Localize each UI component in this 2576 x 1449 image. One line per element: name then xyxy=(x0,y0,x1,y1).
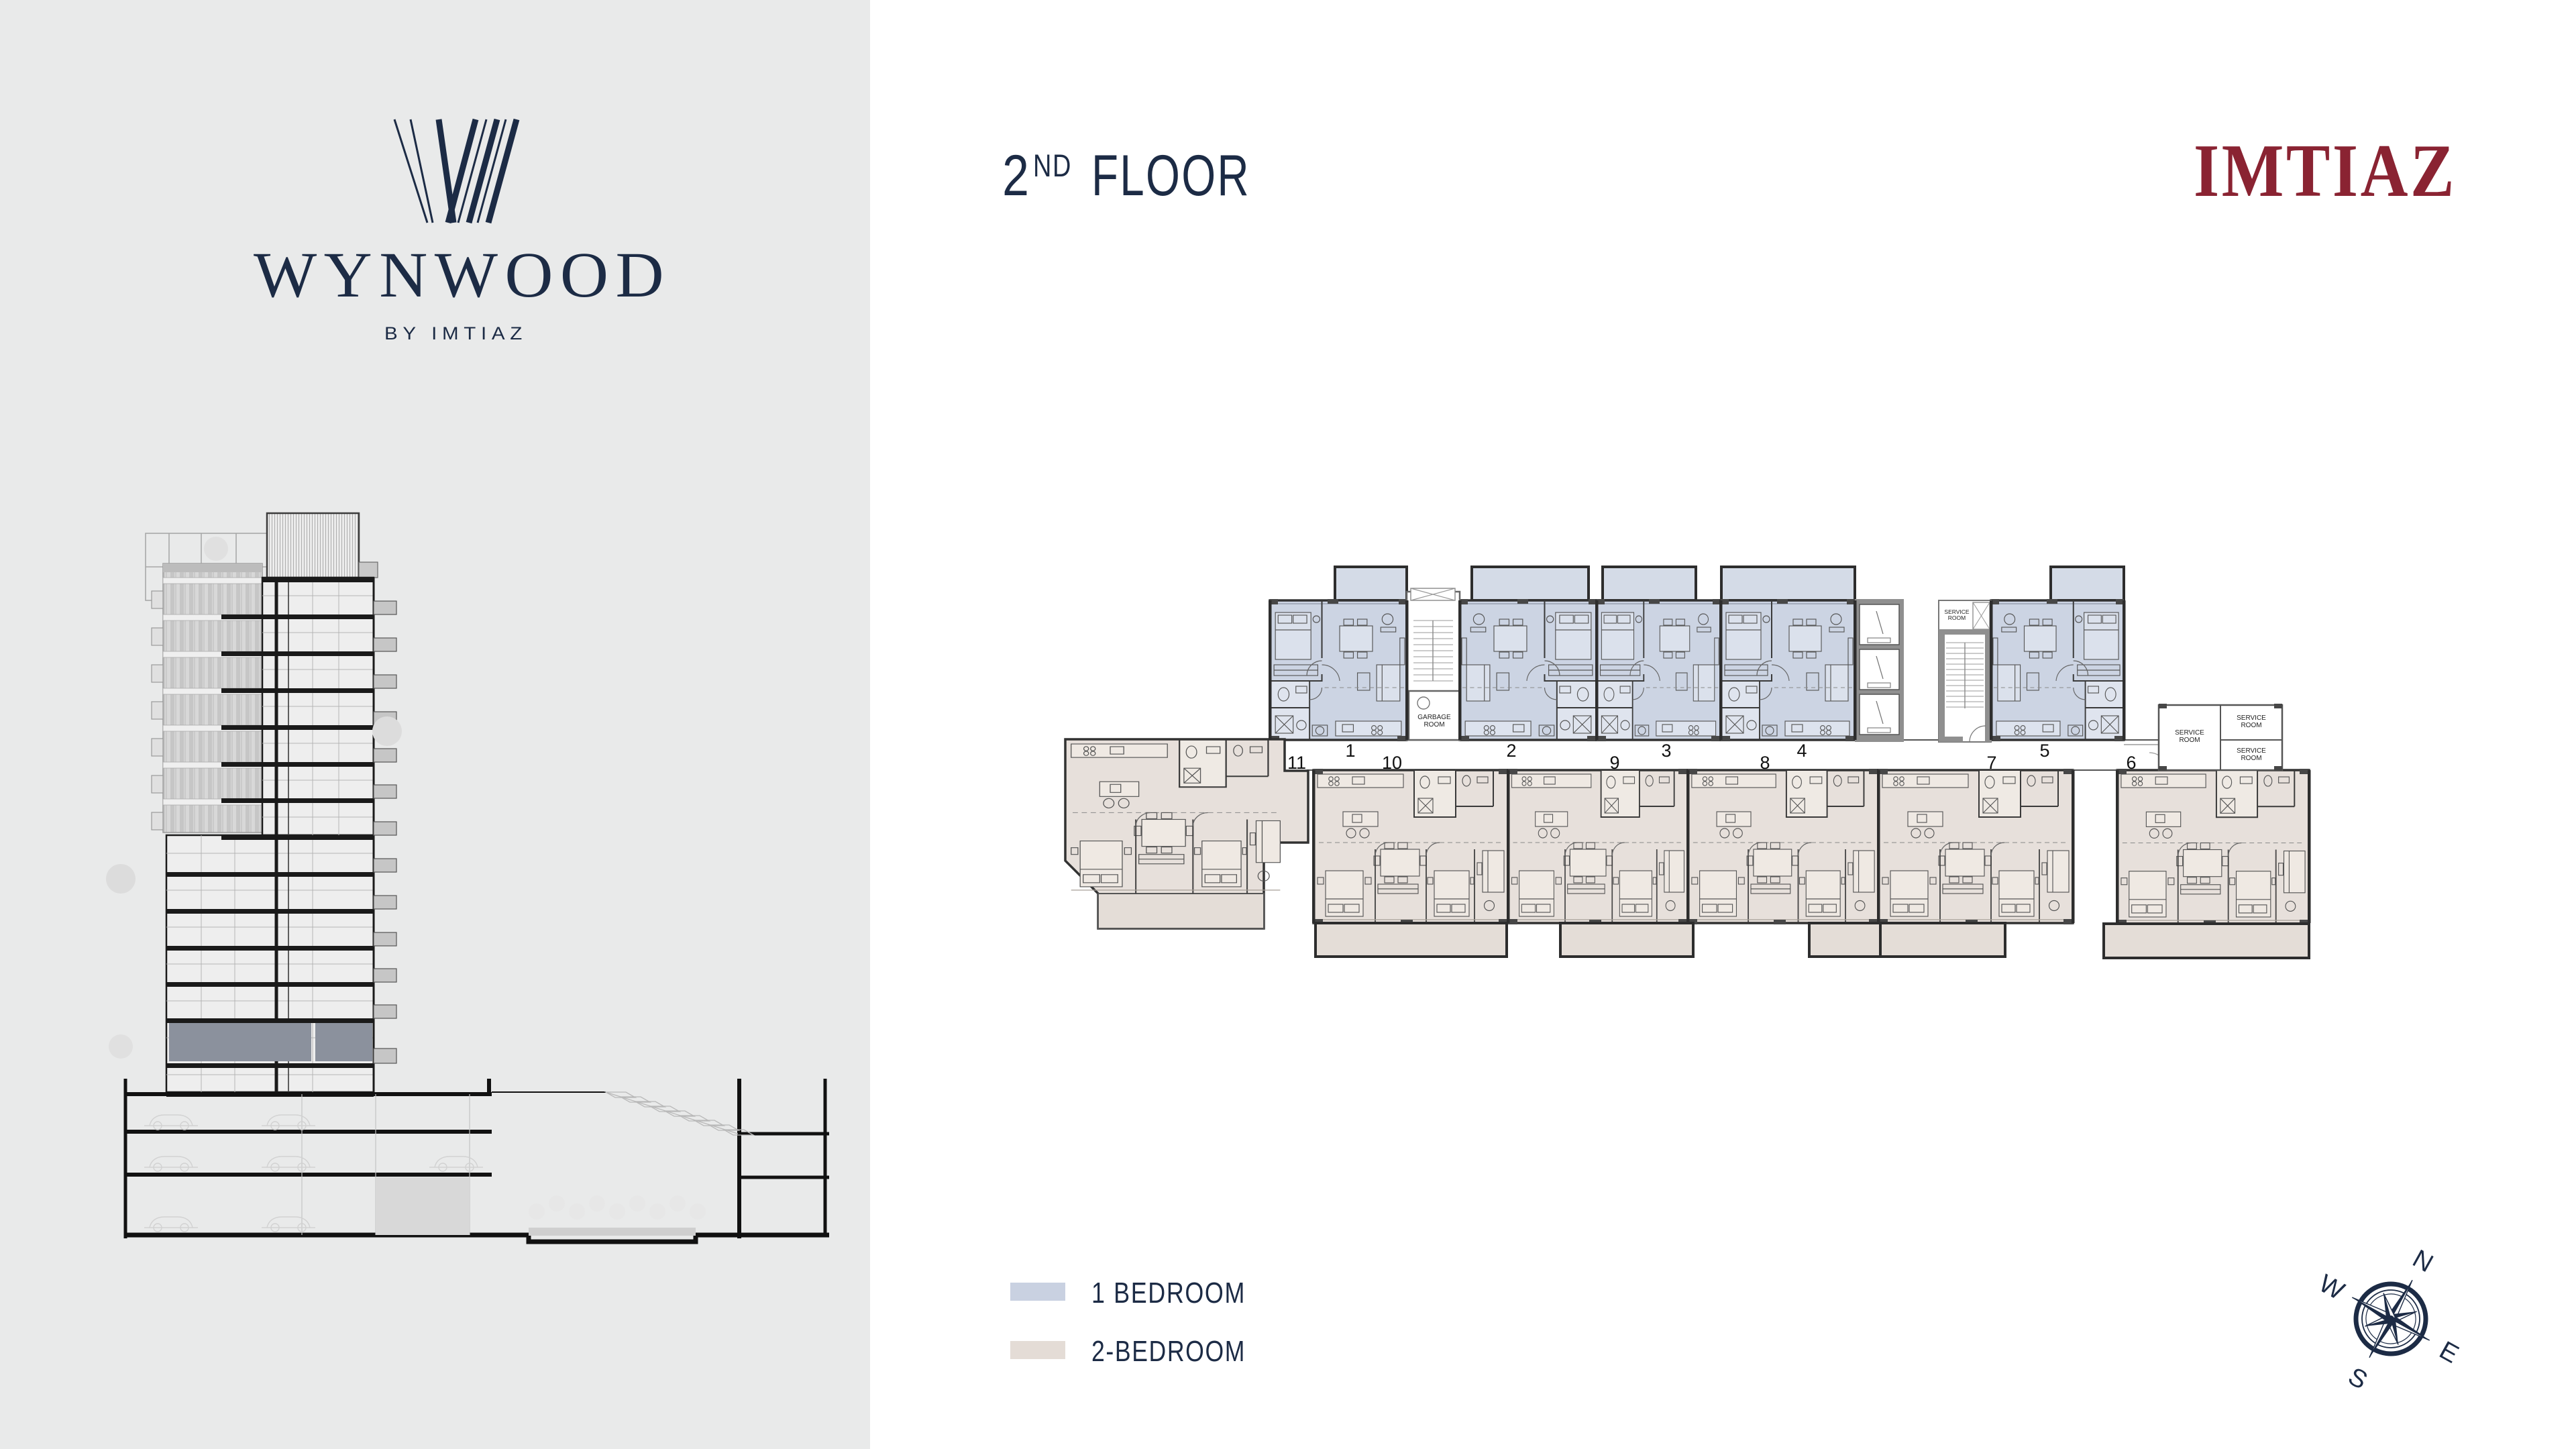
svg-text:ROOM: ROOM xyxy=(1948,614,1966,621)
svg-text:SERVICE: SERVICE xyxy=(2175,729,2204,737)
svg-text:3: 3 xyxy=(1661,741,1671,761)
svg-text:GARBAGE: GARBAGE xyxy=(1417,714,1451,721)
svg-text:7: 7 xyxy=(1986,753,1996,773)
svg-text:6: 6 xyxy=(2126,753,2136,773)
svg-text:ROOM: ROOM xyxy=(2241,722,2261,729)
svg-text:ROOM: ROOM xyxy=(1424,721,1444,729)
svg-text:SERVICE: SERVICE xyxy=(2237,747,2266,755)
svg-text:SERVICE: SERVICE xyxy=(2237,714,2266,722)
svg-text:11: 11 xyxy=(1287,753,1306,773)
svg-text:ND: ND xyxy=(1033,148,1072,183)
svg-text:ROOM: ROOM xyxy=(2241,755,2261,762)
svg-text:BY IMTIAZ: BY IMTIAZ xyxy=(384,323,527,343)
svg-text:WYNWOOD: WYNWOOD xyxy=(254,239,671,311)
svg-text:10: 10 xyxy=(1382,753,1402,773)
svg-text:IMTIAZ: IMTIAZ xyxy=(2194,129,2457,213)
svg-text:2: 2 xyxy=(1002,144,1029,208)
svg-text:9: 9 xyxy=(1609,753,1619,773)
svg-text:ROOM: ROOM xyxy=(2179,737,2200,744)
svg-text:1: 1 xyxy=(1345,741,1355,761)
svg-text:8: 8 xyxy=(1760,753,1770,773)
svg-text:2-BEDROOM: 2-BEDROOM xyxy=(1091,1335,1246,1368)
svg-text:2: 2 xyxy=(1506,741,1516,761)
svg-text:4: 4 xyxy=(1796,741,1807,761)
svg-text:1 BEDROOM: 1 BEDROOM xyxy=(1091,1277,1246,1309)
svg-text:5: 5 xyxy=(2039,741,2049,761)
svg-text:FLOOR: FLOOR xyxy=(1091,144,1250,208)
